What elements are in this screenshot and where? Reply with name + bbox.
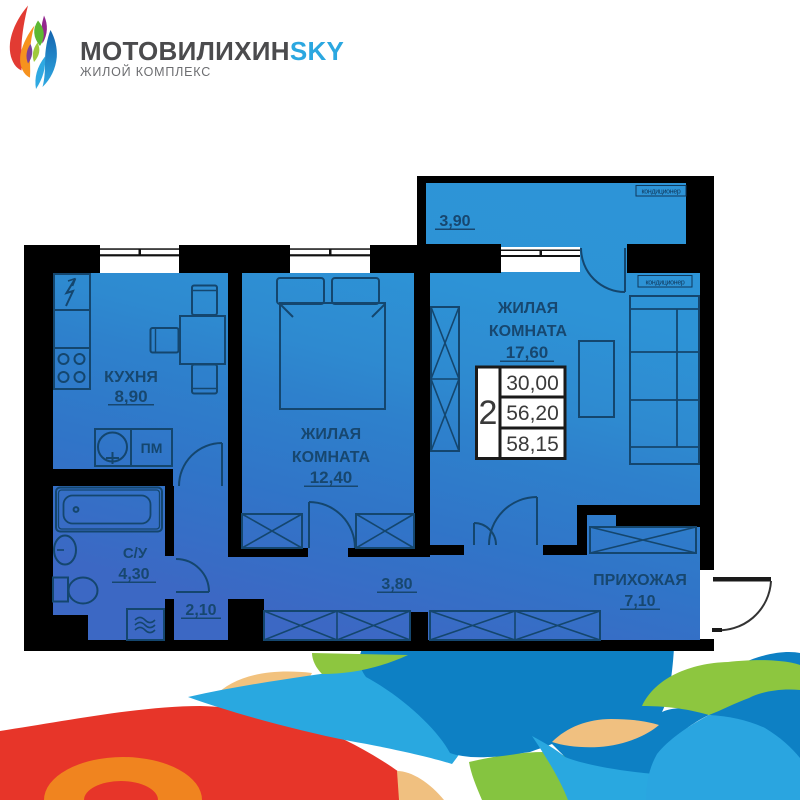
svg-text:С/У: С/У xyxy=(123,545,148,562)
svg-text:7,10: 7,10 xyxy=(624,593,655,610)
svg-text:30,00: 30,00 xyxy=(506,372,559,395)
svg-text:ЖИЛОЙ КОМПЛЕКС: ЖИЛОЙ КОМПЛЕКС xyxy=(80,64,211,79)
svg-text:56,20: 56,20 xyxy=(506,402,559,425)
svg-text:2: 2 xyxy=(479,394,498,432)
svg-text:кондиционер: кондиционер xyxy=(641,189,680,196)
svg-text:ПРИХОЖАЯ: ПРИХОЖАЯ xyxy=(593,572,687,589)
svg-text:ПМ: ПМ xyxy=(141,440,163,456)
svg-text:МОТОВИЛИХИНSKY: МОТОВИЛИХИНSKY xyxy=(80,36,344,66)
svg-text:12,40: 12,40 xyxy=(310,468,353,487)
svg-text:КОМНАТА: КОМНАТА xyxy=(489,323,568,340)
svg-text:17,60: 17,60 xyxy=(506,343,549,362)
svg-text:КОМНАТА: КОМНАТА xyxy=(292,449,371,466)
svg-text:3,90: 3,90 xyxy=(439,213,470,230)
svg-text:8,90: 8,90 xyxy=(114,387,147,406)
svg-text:3,80: 3,80 xyxy=(381,576,412,593)
svg-text:ЖИЛАЯ: ЖИЛАЯ xyxy=(497,300,558,317)
svg-text:58,15: 58,15 xyxy=(506,433,559,456)
svg-text:2,10: 2,10 xyxy=(185,602,216,619)
svg-text:кондиционер: кондиционер xyxy=(645,280,684,287)
svg-text:ЖИЛАЯ: ЖИЛАЯ xyxy=(300,426,361,443)
svg-text:КУХНЯ: КУХНЯ xyxy=(104,369,158,386)
svg-text:4,30: 4,30 xyxy=(118,566,149,583)
